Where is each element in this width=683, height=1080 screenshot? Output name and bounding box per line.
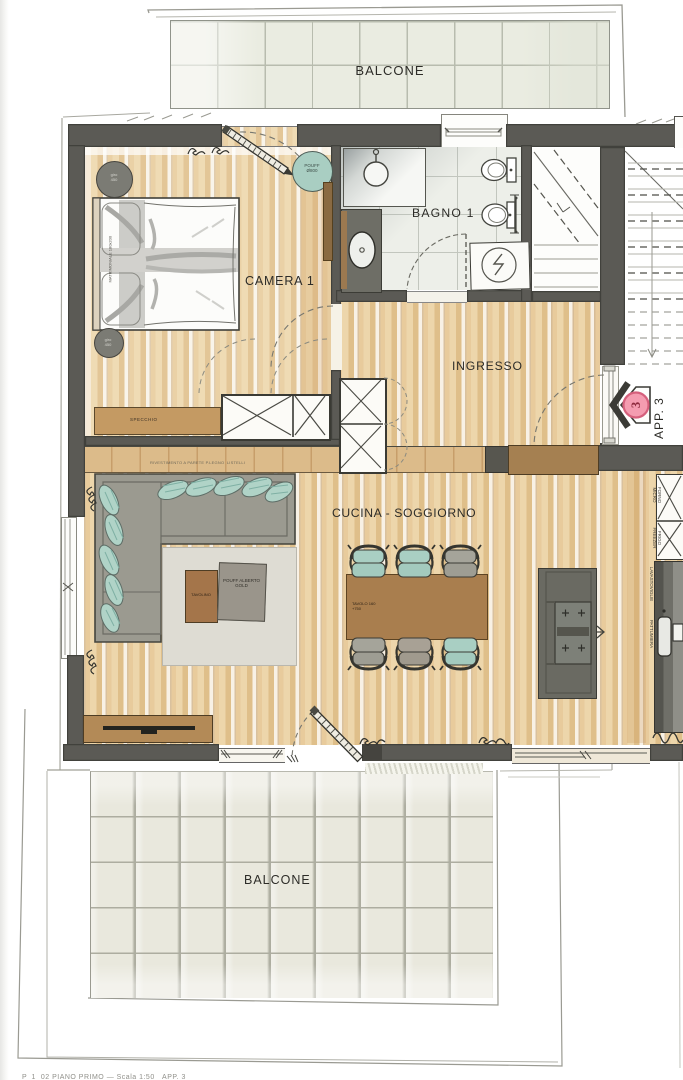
svg-text:3: 3 [629, 402, 643, 408]
